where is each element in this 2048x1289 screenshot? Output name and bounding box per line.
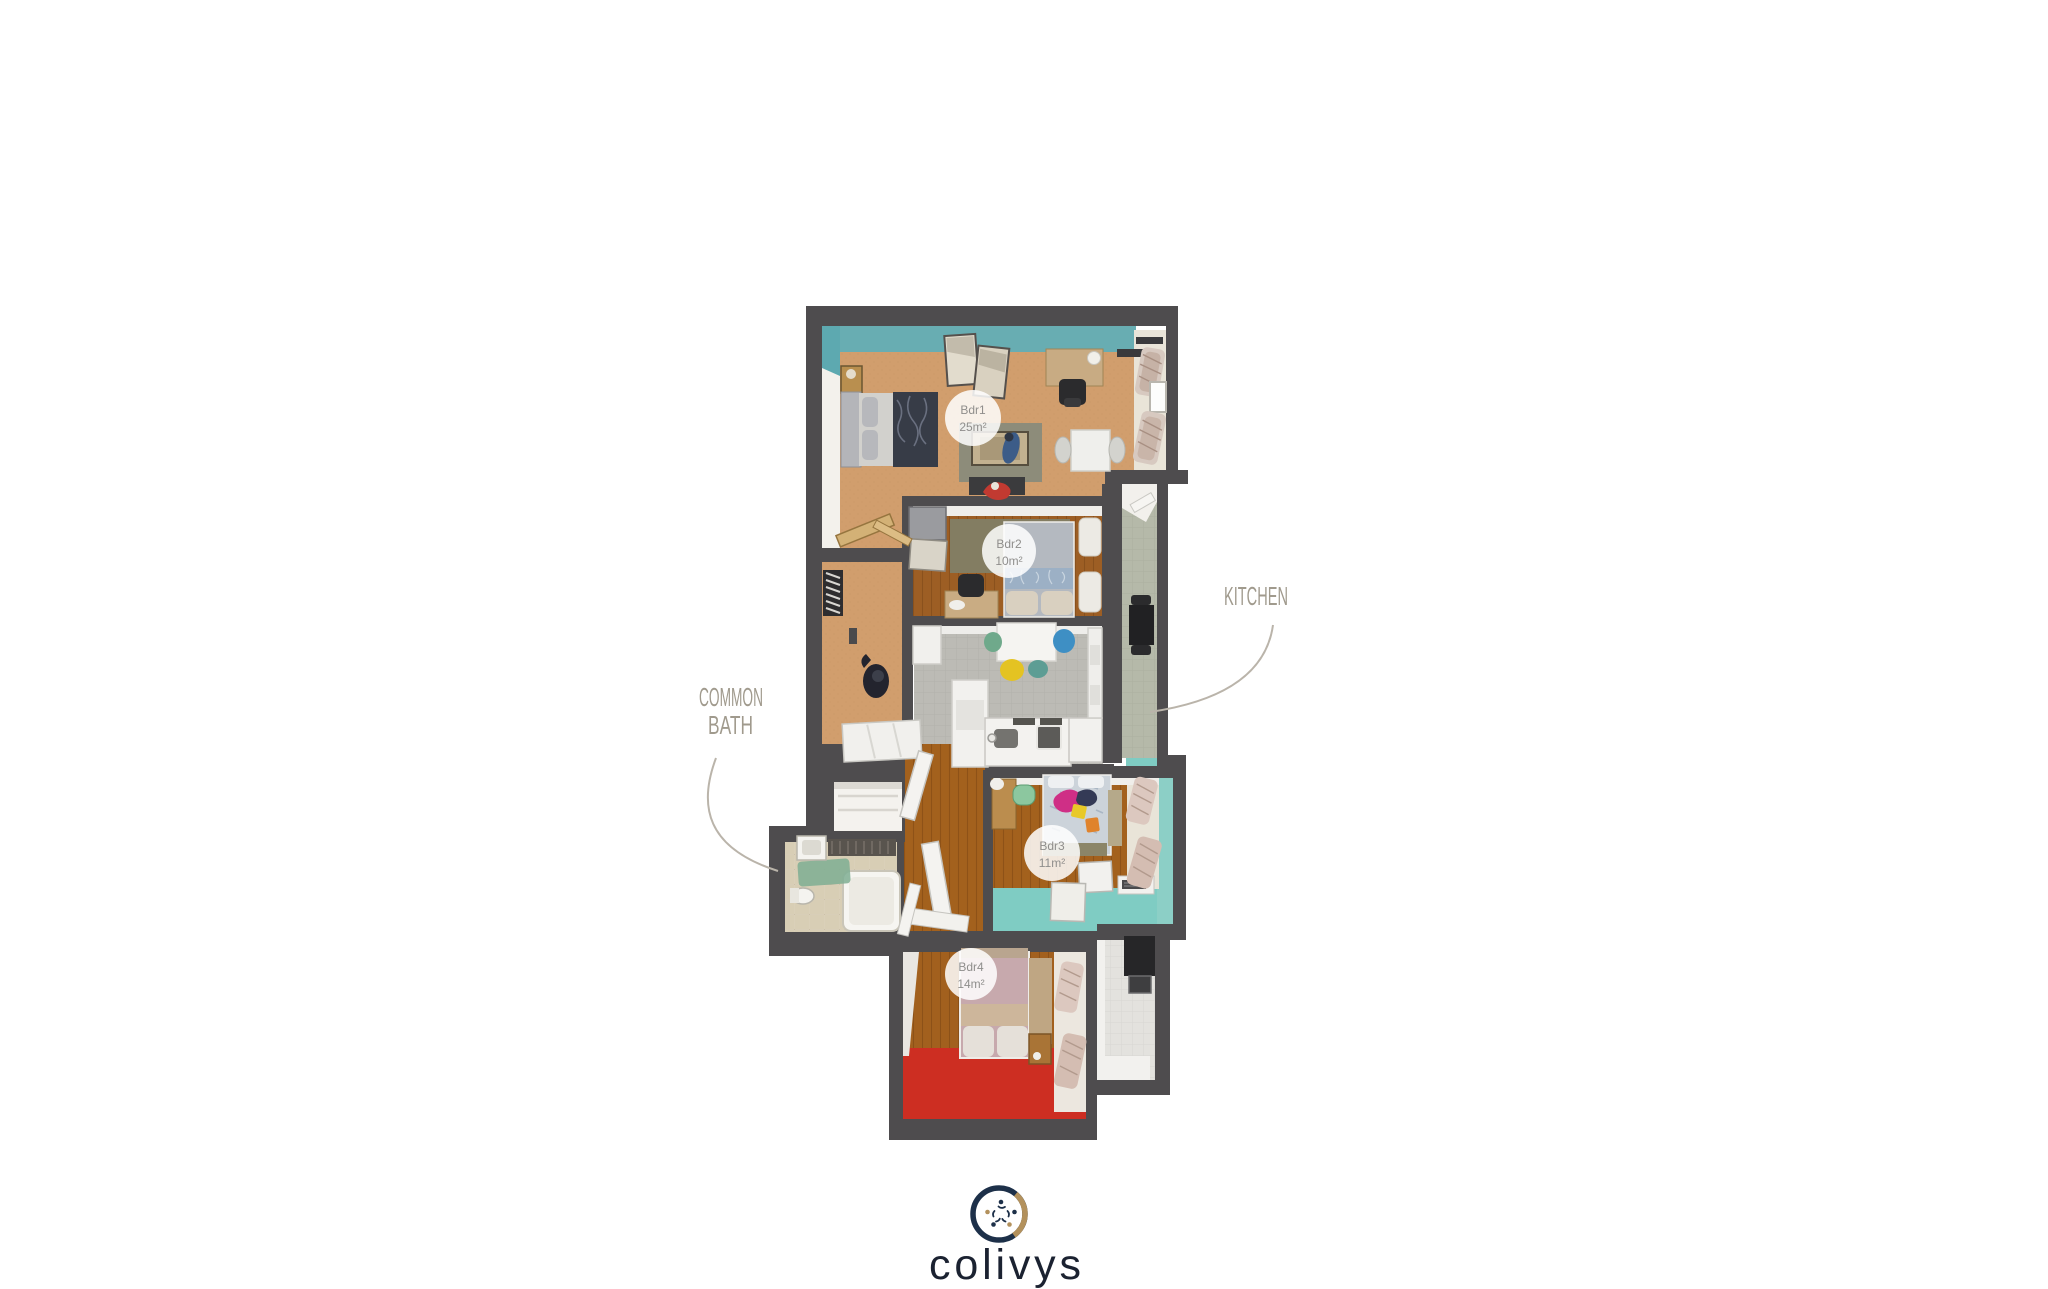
svg-text:11m²: 11m² <box>1039 856 1065 870</box>
svg-text:14m²: 14m² <box>957 977 984 991</box>
svg-text:BATH: BATH <box>708 710 753 740</box>
svg-text:Bdr3: Bdr3 <box>1039 839 1065 853</box>
svg-text:Bdr2: Bdr2 <box>996 537 1022 551</box>
svg-text:Bdr4: Bdr4 <box>958 960 984 974</box>
svg-text:25m²: 25m² <box>959 420 986 434</box>
svg-text:Bdr1: Bdr1 <box>960 403 986 417</box>
svg-text:COMMON: COMMON <box>699 682 763 712</box>
svg-text:KITCHEN: KITCHEN <box>1224 581 1288 611</box>
svg-text:10m²: 10m² <box>995 554 1022 568</box>
